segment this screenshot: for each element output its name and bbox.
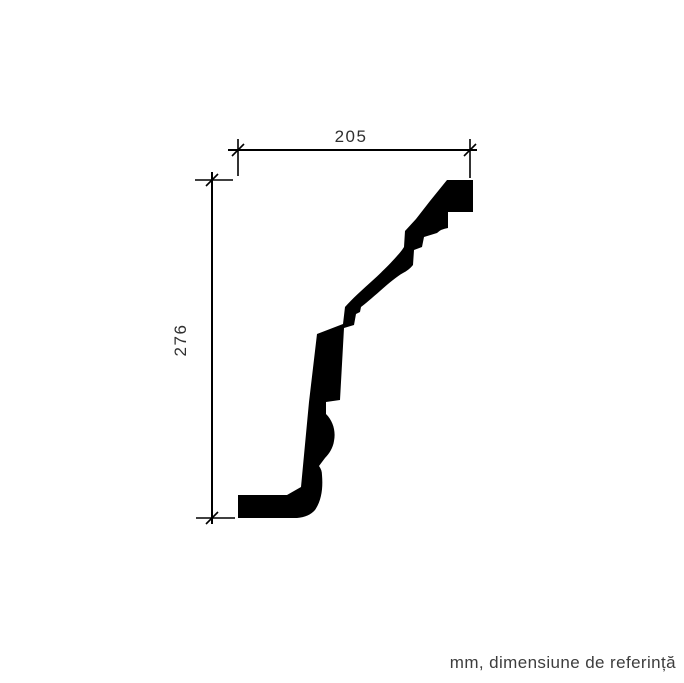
vertical-dimension: 276: [171, 172, 235, 524]
units-note: mm, dimensiune de referință: [450, 653, 676, 673]
drawing-canvas: 205 276 mm, dimensiune de referință: [0, 0, 684, 683]
cornice-profile-drawing: 205 276: [0, 0, 684, 683]
horizontal-dimension: 205: [228, 127, 477, 178]
profile-shape: [238, 180, 473, 518]
height-dimension-label: 276: [171, 324, 190, 357]
width-dimension-label: 205: [335, 127, 368, 146]
